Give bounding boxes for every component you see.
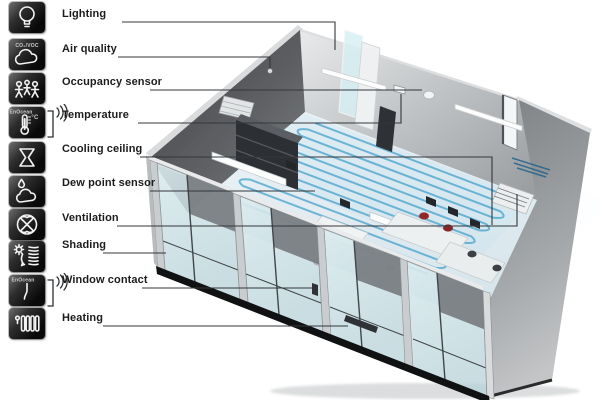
building-automation-diagram: Lighting CO₂/VOC Air quality Occupancy s… [0, 0, 600, 400]
occupancy-dome-sensor [424, 91, 435, 99]
window-contact-device [312, 283, 318, 296]
air-quality-wall-sensor [267, 68, 272, 73]
isometric-room-scene [0, 0, 600, 400]
callout-air-quality [118, 57, 270, 68]
